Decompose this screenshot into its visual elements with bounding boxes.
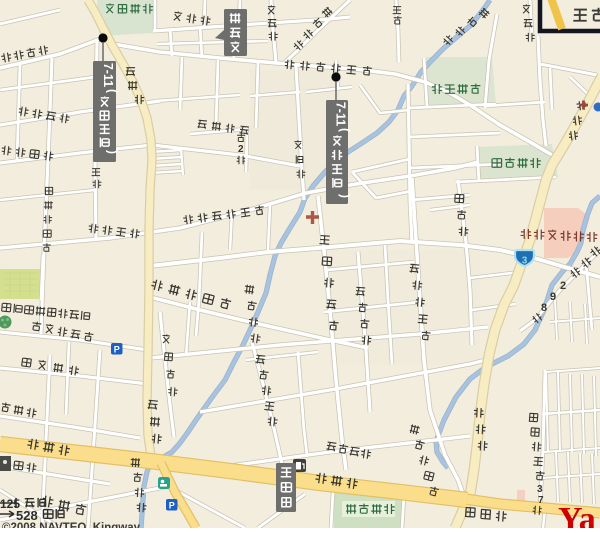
svg-text:2: 2 — [560, 280, 566, 292]
svg-text:(: ( — [338, 128, 352, 132]
svg-text:7: 7 — [538, 495, 544, 506]
svg-text:©2008 NAVTEQ, Kingway: ©2008 NAVTEQ, Kingway — [2, 522, 141, 528]
svg-text:Ya: Ya — [558, 501, 596, 528]
svg-text:3: 3 — [522, 256, 528, 267]
svg-text:7-11: 7-11 — [334, 102, 348, 126]
svg-text:(: ( — [106, 89, 120, 93]
svg-text:7-11: 7-11 — [101, 63, 115, 87]
svg-text:528: 528 — [16, 508, 38, 523]
svg-text:9: 9 — [550, 291, 556, 303]
svg-text:8: 8 — [541, 302, 547, 314]
svg-text:3: 3 — [537, 484, 543, 495]
svg-text:P: P — [114, 345, 120, 355]
svg-text:2: 2 — [238, 144, 244, 155]
svg-text:P: P — [169, 501, 175, 511]
svg-text:): ) — [338, 194, 352, 198]
svg-text:): ) — [106, 150, 120, 154]
